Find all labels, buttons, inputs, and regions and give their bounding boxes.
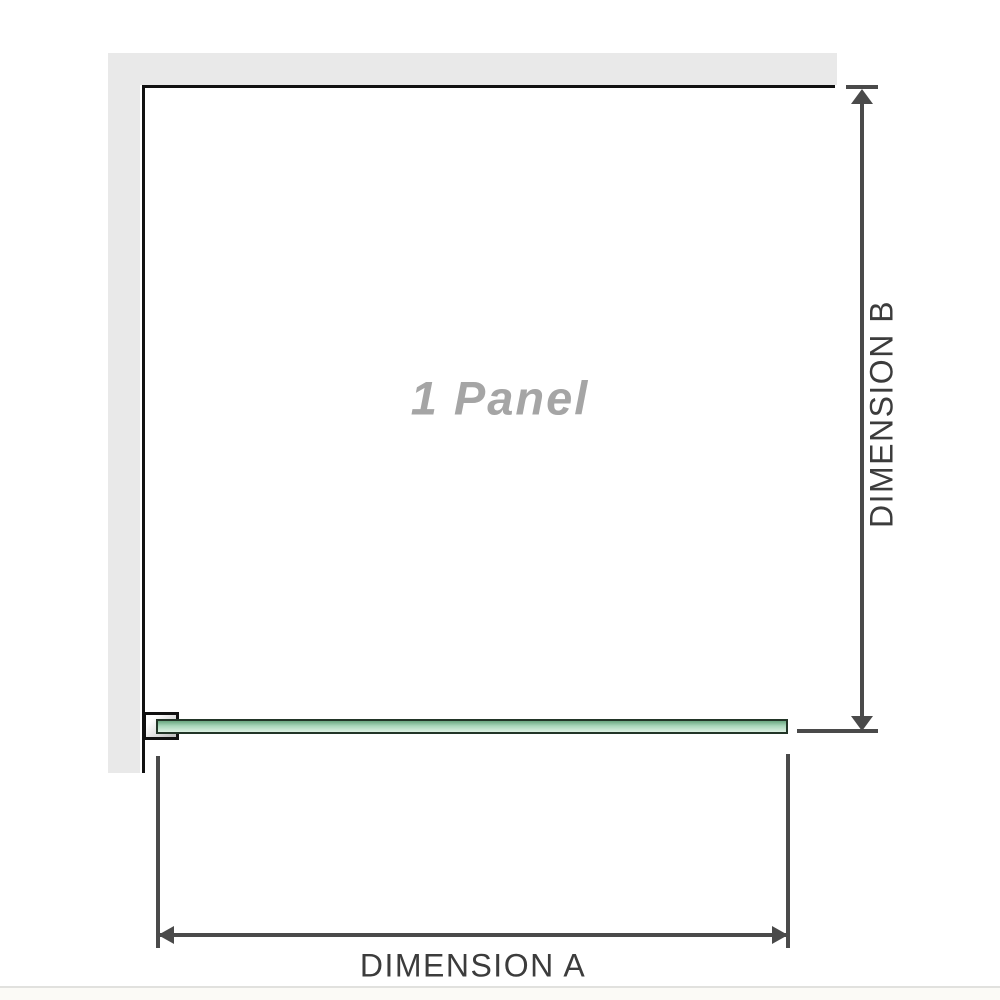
dimension-a-extension-right [786,754,790,948]
dimension-a-line [160,933,786,937]
panel-top-edge [142,85,835,88]
panel-dimension-diagram: 1 Panel DIMENSION B DIMENSION A [0,0,1000,1000]
dimension-a-label: DIMENSION A [360,948,586,985]
dimension-b-arrow-down-icon [851,716,873,731]
footer-strip [0,988,1000,1000]
wall-top [108,53,837,85]
dimension-b-arrow-up-icon [851,89,873,104]
dimension-a-arrow-right-icon [772,926,788,944]
panel-left-edge [142,85,145,773]
dimension-a-extension-left [156,756,160,948]
dimension-a-arrow-left-icon [158,926,174,944]
glass-panel [156,719,788,734]
panel-count-label: 1 Panel [411,371,590,426]
wall-left [108,53,140,773]
dimension-b-label: DIMENSION B [864,300,901,528]
